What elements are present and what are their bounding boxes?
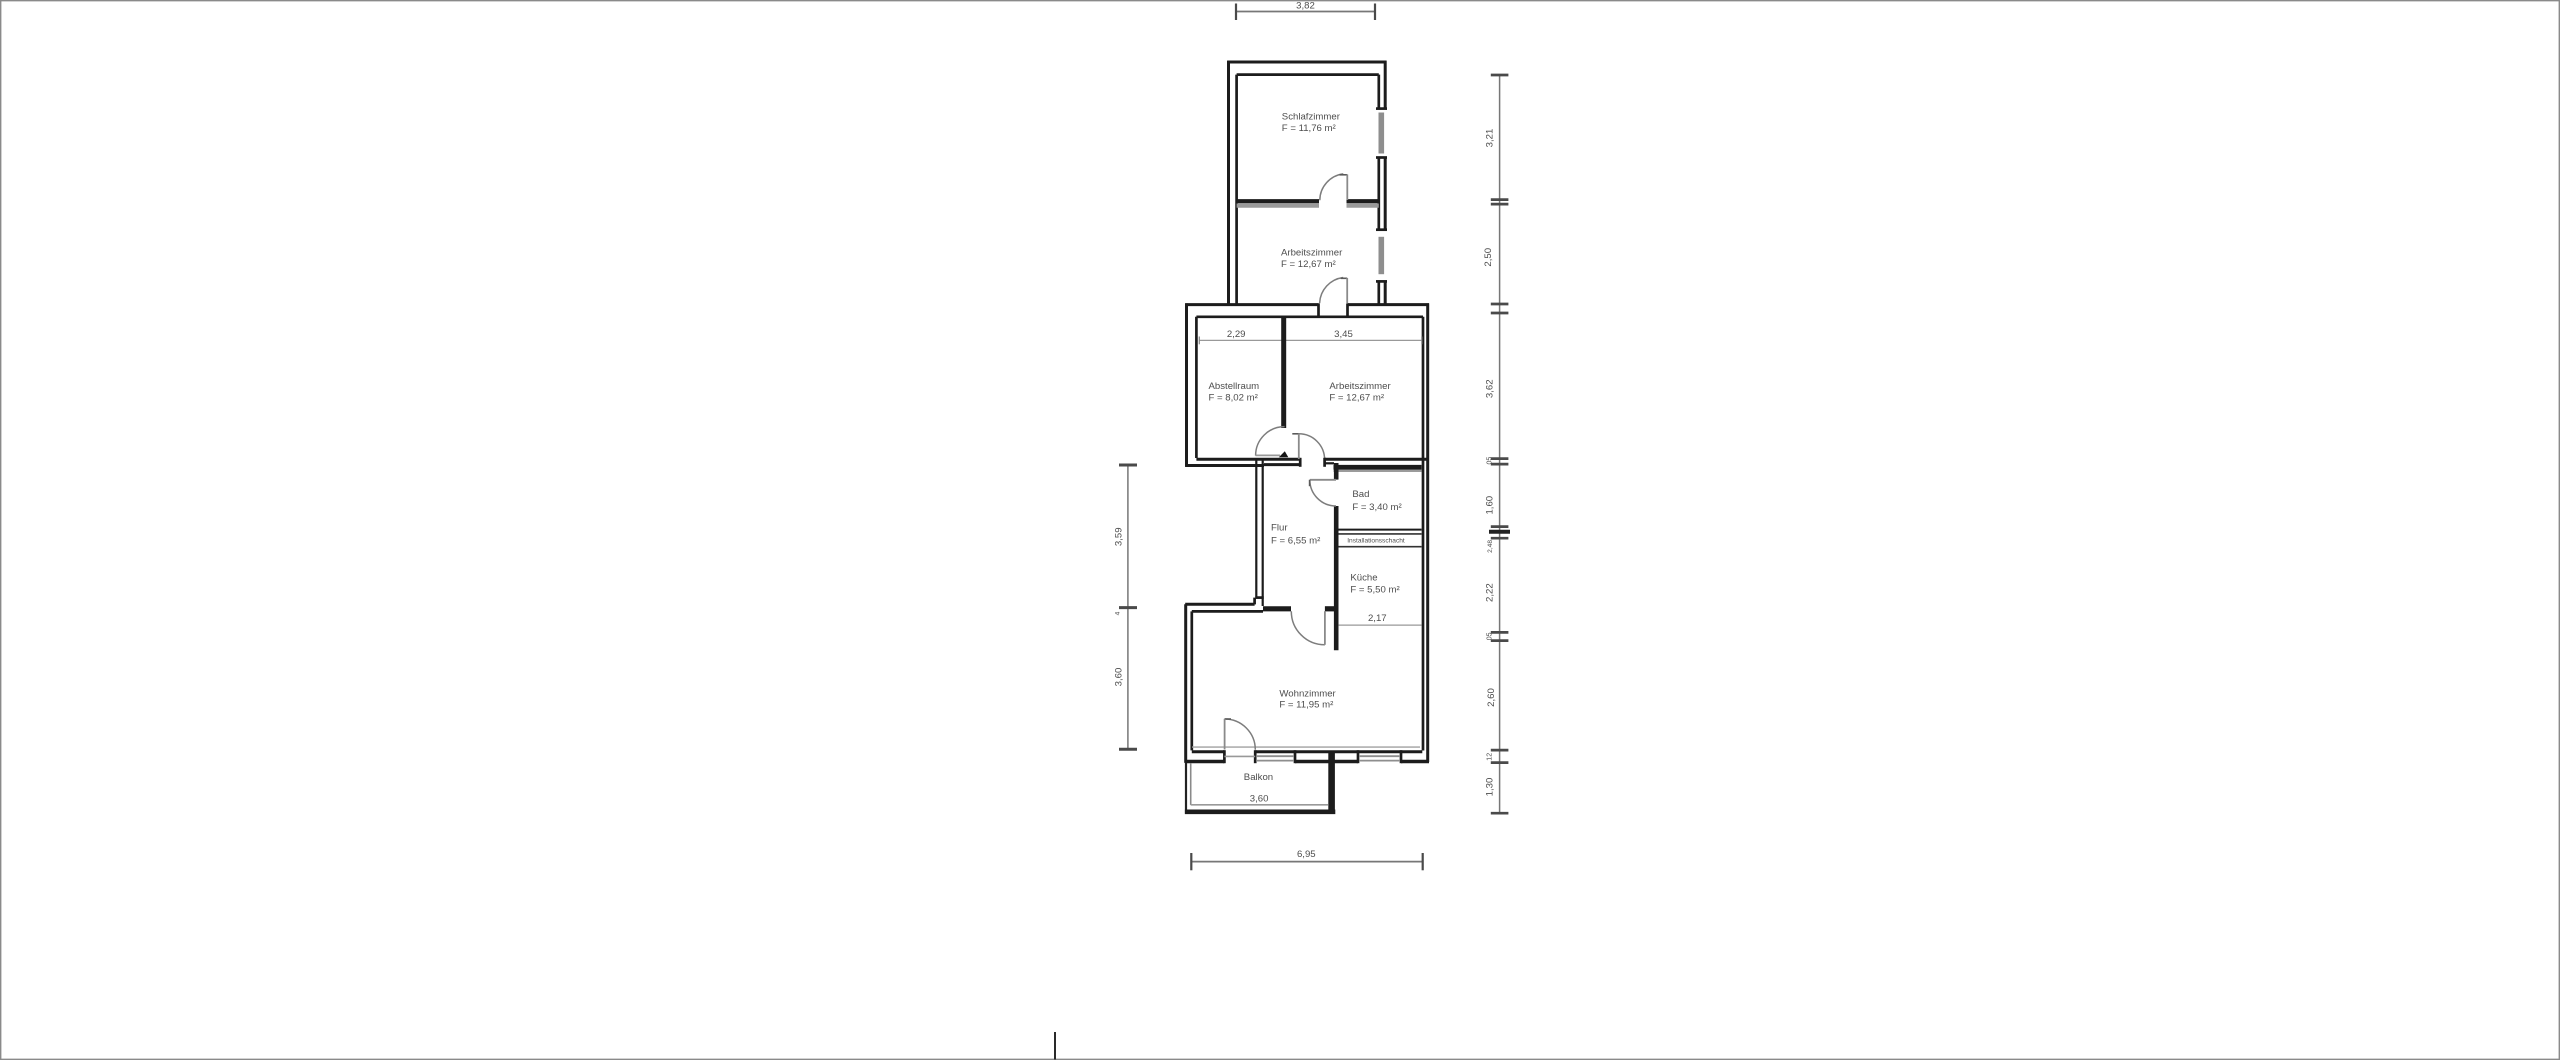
svg-text:Schlafzimmer: Schlafzimmer bbox=[1282, 111, 1341, 122]
svg-text:1,30: 1,30 bbox=[1485, 778, 1496, 797]
svg-text:Installationsschacht: Installationsschacht bbox=[1347, 537, 1405, 544]
svg-text:Arbeitszimmer: Arbeitszimmer bbox=[1281, 247, 1343, 258]
svg-text:05: 05 bbox=[1487, 632, 1494, 640]
svg-text:F = 12,67 m²: F = 12,67 m² bbox=[1329, 393, 1384, 404]
svg-text:3,62: 3,62 bbox=[1485, 379, 1496, 398]
svg-text:05: 05 bbox=[1487, 457, 1494, 465]
svg-text:Wohnzimmer: Wohnzimmer bbox=[1279, 688, 1336, 699]
svg-text:2,29: 2,29 bbox=[1227, 329, 1246, 340]
svg-text:F = 6,55 m²: F = 6,55 m² bbox=[1271, 535, 1321, 546]
svg-text:Balkon: Balkon bbox=[1244, 772, 1273, 783]
svg-text:2,17: 2,17 bbox=[1368, 613, 1387, 624]
svg-text:2,50: 2,50 bbox=[1483, 248, 1494, 267]
svg-text:F = 8,02 m²: F = 8,02 m² bbox=[1209, 393, 1259, 404]
svg-text:F = 11,95 m²: F = 11,95 m² bbox=[1279, 700, 1334, 711]
svg-text:2,48: 2,48 bbox=[1487, 540, 1494, 553]
svg-text:Küche: Küche bbox=[1350, 573, 1377, 584]
svg-text:3,82: 3,82 bbox=[1296, 0, 1315, 11]
svg-text:2,60: 2,60 bbox=[1486, 688, 1497, 707]
svg-text:3,60: 3,60 bbox=[1250, 794, 1269, 805]
svg-text:3,59: 3,59 bbox=[1114, 527, 1125, 546]
svg-text:Flur: Flur bbox=[1271, 522, 1288, 533]
svg-text:4: 4 bbox=[1115, 611, 1122, 615]
svg-text:3,60: 3,60 bbox=[1114, 668, 1125, 687]
svg-text:Bad: Bad bbox=[1352, 489, 1369, 500]
svg-text:1,60: 1,60 bbox=[1485, 496, 1496, 515]
svg-text:6,95: 6,95 bbox=[1297, 849, 1316, 860]
svg-text:F = 12,67 m²: F = 12,67 m² bbox=[1281, 259, 1336, 270]
svg-text:12: 12 bbox=[1487, 753, 1494, 761]
svg-text:2,22: 2,22 bbox=[1485, 583, 1496, 602]
svg-text:F = 11,76 m²: F = 11,76 m² bbox=[1282, 123, 1337, 134]
svg-text:F = 3,40 m²: F = 3,40 m² bbox=[1352, 502, 1402, 513]
svg-text:3,45: 3,45 bbox=[1334, 329, 1353, 340]
svg-text:F = 5,50 m²: F = 5,50 m² bbox=[1350, 585, 1400, 596]
svg-text:3,21: 3,21 bbox=[1485, 129, 1496, 148]
svg-text:Arbeitszimmer: Arbeitszimmer bbox=[1329, 381, 1391, 392]
svg-text:Abstellraum: Abstellraum bbox=[1209, 381, 1260, 392]
